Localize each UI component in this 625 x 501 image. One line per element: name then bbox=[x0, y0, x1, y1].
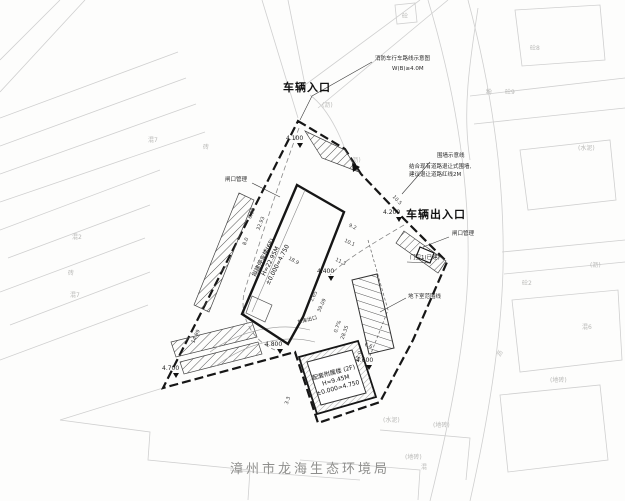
fence-note-line3: 建议退让道路红线2M bbox=[409, 170, 461, 178]
elevation-marker: 4.800 bbox=[265, 341, 283, 354]
dimension-label: 28.35 bbox=[340, 325, 351, 341]
elevation-triangle-icon bbox=[396, 217, 402, 222]
fire-route-note-line1: 消防车行车路线示意图 bbox=[375, 54, 431, 62]
dimension-label: 10.1 bbox=[343, 238, 356, 248]
elevation-marker: 4.400 bbox=[317, 268, 334, 281]
context-label: (地砖) bbox=[405, 453, 422, 461]
site-plan-drawing: 混7 砖 混2 砖 混7 砼8 砼9 粉 (水泥) (沥) 砼2 混6 沥 (地… bbox=[0, 0, 625, 501]
context-label: 混7 bbox=[148, 136, 158, 144]
elevation-value: 4.200 bbox=[383, 209, 400, 216]
context-label: 粉 bbox=[486, 88, 492, 96]
gate-management-right-label: 闸口管理 bbox=[452, 229, 475, 237]
context-label: 砖 bbox=[68, 269, 74, 277]
dimension-label: 9.2 bbox=[348, 223, 358, 232]
fire-route-note-line2: W(B)≥4.0M bbox=[392, 66, 424, 72]
gate-management-left-label: 闸口管理 bbox=[225, 175, 248, 183]
gate-left-leader bbox=[252, 183, 280, 197]
elevation-value: 4.400 bbox=[317, 268, 334, 275]
dimension-label: 39.09 bbox=[316, 298, 327, 314]
dimension-label: 18.9 bbox=[287, 256, 300, 267]
vehicle-entrance-label: 车辆入口 bbox=[283, 80, 331, 94]
gate-right-leader bbox=[423, 237, 449, 247]
elevation-value: 4.100 bbox=[286, 135, 303, 142]
dimension-label: 32.93 bbox=[256, 216, 267, 232]
context-label: (水泥) bbox=[578, 144, 595, 152]
context-label: (沥) bbox=[590, 261, 601, 269]
elevation-triangle-icon bbox=[328, 276, 334, 281]
main-building-label: 拟建停车楼(6F) H=22.95M ±0.000=4.750 bbox=[249, 236, 291, 287]
dimension-label: 8.0 bbox=[242, 237, 251, 247]
context-label: 砼 bbox=[402, 12, 408, 20]
elevation-triangle-icon bbox=[297, 143, 303, 148]
site-plan-canvas: 混7 砖 混2 砖 混7 砼8 砼9 粉 (水泥) (沥) 砼2 混6 沥 (地… bbox=[0, 0, 625, 501]
context-label: 混 bbox=[421, 463, 427, 471]
parking-hatch-left bbox=[194, 193, 254, 312]
parking-hatch-entry-fan bbox=[305, 131, 359, 172]
context-linework bbox=[0, 0, 625, 501]
elevation-value: 4.700 bbox=[162, 365, 179, 372]
elevation-triangle-icon bbox=[277, 349, 283, 354]
fence-note-line1: 围墙示意线 bbox=[437, 151, 465, 159]
context-label: 混6 bbox=[582, 323, 592, 331]
agency-title: 漳州市龙海生态环境局 bbox=[230, 461, 390, 477]
elevation-marker: 4.700 bbox=[162, 365, 179, 378]
fence-note-line2: 结合现有道路退让式围墙, bbox=[409, 162, 472, 170]
elevation-marker: 4.200 bbox=[383, 209, 402, 222]
context-label: (地砖) bbox=[433, 421, 450, 429]
dimension-label: 3.3 bbox=[284, 396, 292, 405]
context-label: (水泥) bbox=[383, 416, 400, 424]
vehicle-exit-entrance-label: 车辆出入口 bbox=[406, 207, 466, 221]
elevation-marker: 4.100 bbox=[286, 135, 303, 148]
basement-extent-label: 地下室范围线 bbox=[408, 292, 442, 300]
context-label: 混2 bbox=[72, 233, 82, 241]
drive-centerline-east bbox=[330, 225, 404, 275]
context-label: 砼8 bbox=[530, 44, 540, 52]
context-label: 砖 bbox=[203, 143, 209, 151]
garage-exit-label: 车库出口 bbox=[297, 314, 318, 326]
context-label: (沥) bbox=[322, 101, 333, 109]
context-label: 混7 bbox=[70, 291, 80, 299]
context-label: (地砖) bbox=[550, 376, 567, 384]
main-building: 拟建停车楼(6F) H=22.95M ±0.000=4.750 bbox=[242, 185, 344, 344]
context-label: 砼2 bbox=[522, 279, 532, 287]
dimension-label: 1.65 bbox=[309, 290, 319, 303]
parking-areas bbox=[171, 131, 446, 374]
elevation-triangle-icon bbox=[173, 373, 179, 378]
guard-house-label: 门卫1(已建) bbox=[410, 253, 440, 261]
dimension-label: 10.5 bbox=[391, 194, 403, 206]
context-label: 砼9 bbox=[505, 88, 515, 96]
elevation-value: 4.800 bbox=[265, 341, 282, 348]
